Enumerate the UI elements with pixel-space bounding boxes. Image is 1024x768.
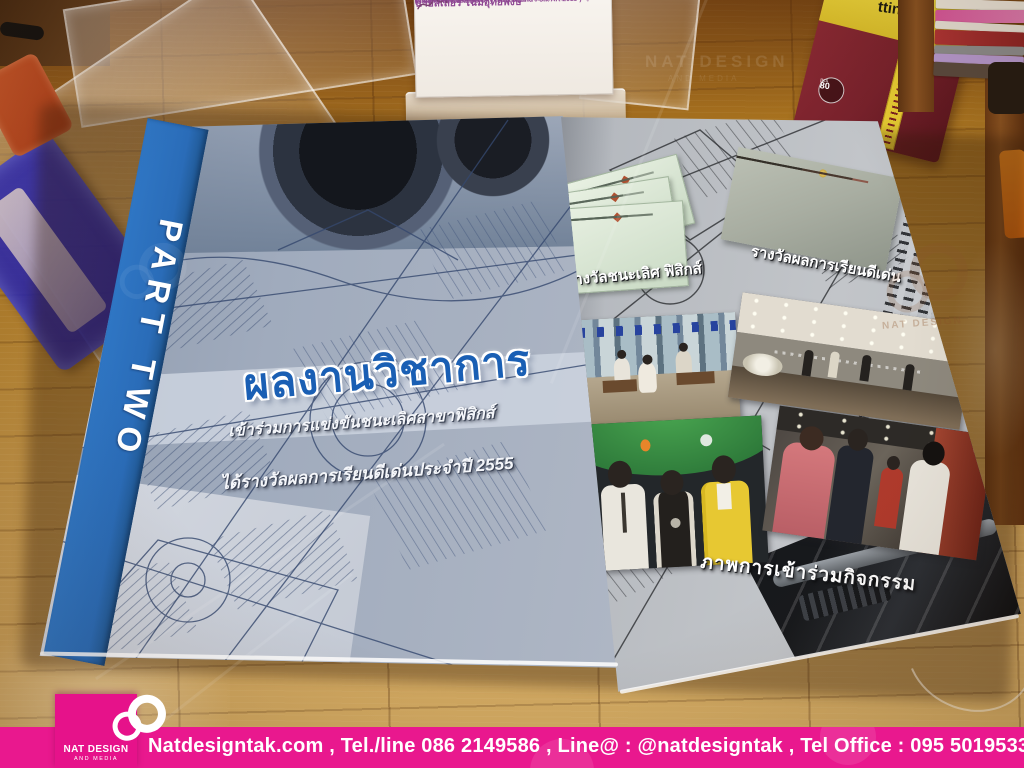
brand-name-text: NAT DESIGN	[55, 744, 137, 755]
brand-subname-text: AND MEDIA	[55, 756, 137, 762]
brand-logo: NAT DESIGN AND MEDIA	[55, 694, 137, 768]
photo-scene: นายสเถียร โฉมอุทัยพงษ์ ขอมอบเกียรติบัตรน…	[0, 0, 1024, 768]
infinity-logo-icon	[96, 694, 178, 744]
photo-vignette	[0, 0, 1024, 768]
contact-info-text: Natdesigntak.com , Tel./line 086 2149586…	[148, 735, 1024, 758]
